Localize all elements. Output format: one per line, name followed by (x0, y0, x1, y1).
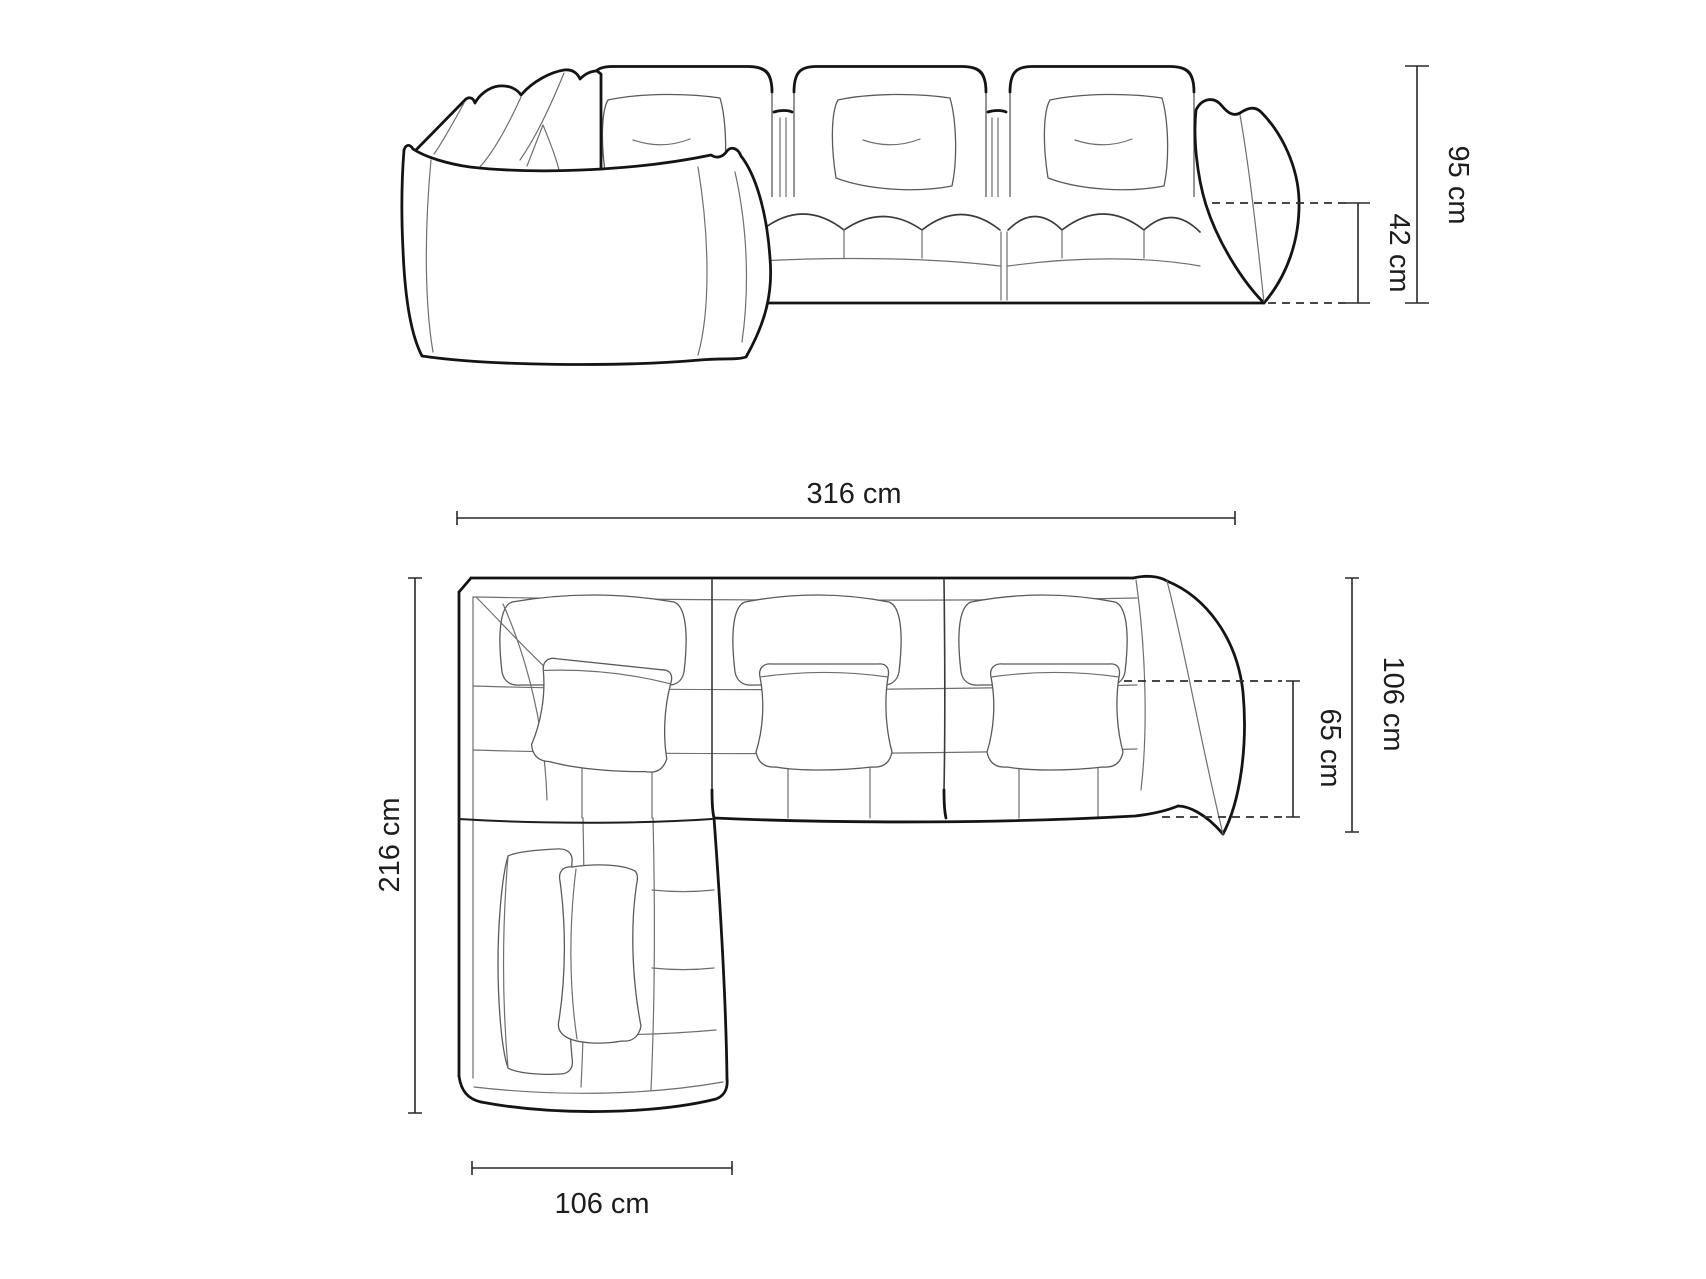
dim-label-overall-height: 95 cm (1442, 146, 1474, 225)
corner-module (402, 145, 771, 364)
dim-label-seat-depth: 65 cm (1314, 709, 1346, 788)
dim-label-seat-height: 42 cm (1383, 214, 1415, 293)
dim-label-body-depth: 106 cm (1377, 656, 1409, 751)
chaise-width-dimension-line (472, 1161, 732, 1175)
front-elevation-view: 95 cm 42 cm (402, 66, 1474, 365)
overall-depth-dimension-line (408, 578, 422, 1113)
drawing-canvas: 95 cm 42 cm (0, 0, 1706, 1279)
body-depth-dimension-line (1345, 578, 1359, 832)
dim-label-chaise-width: 106 cm (554, 1188, 649, 1220)
seat-depth-dimension-line (1286, 681, 1300, 817)
seat-height-dimension-line (1346, 203, 1370, 303)
dim-label-overall-depth: 216 cm (374, 797, 406, 892)
tufted-seat (705, 197, 1225, 303)
top-plan-view: 316 cm 216 cm 106 cm 65 cm 106 cm (374, 478, 1409, 1220)
sofa-dimension-drawing: 95 cm 42 cm (0, 0, 1706, 1279)
overall-width-dimension-line (457, 511, 1235, 525)
dim-label-overall-width: 316 cm (806, 478, 901, 510)
